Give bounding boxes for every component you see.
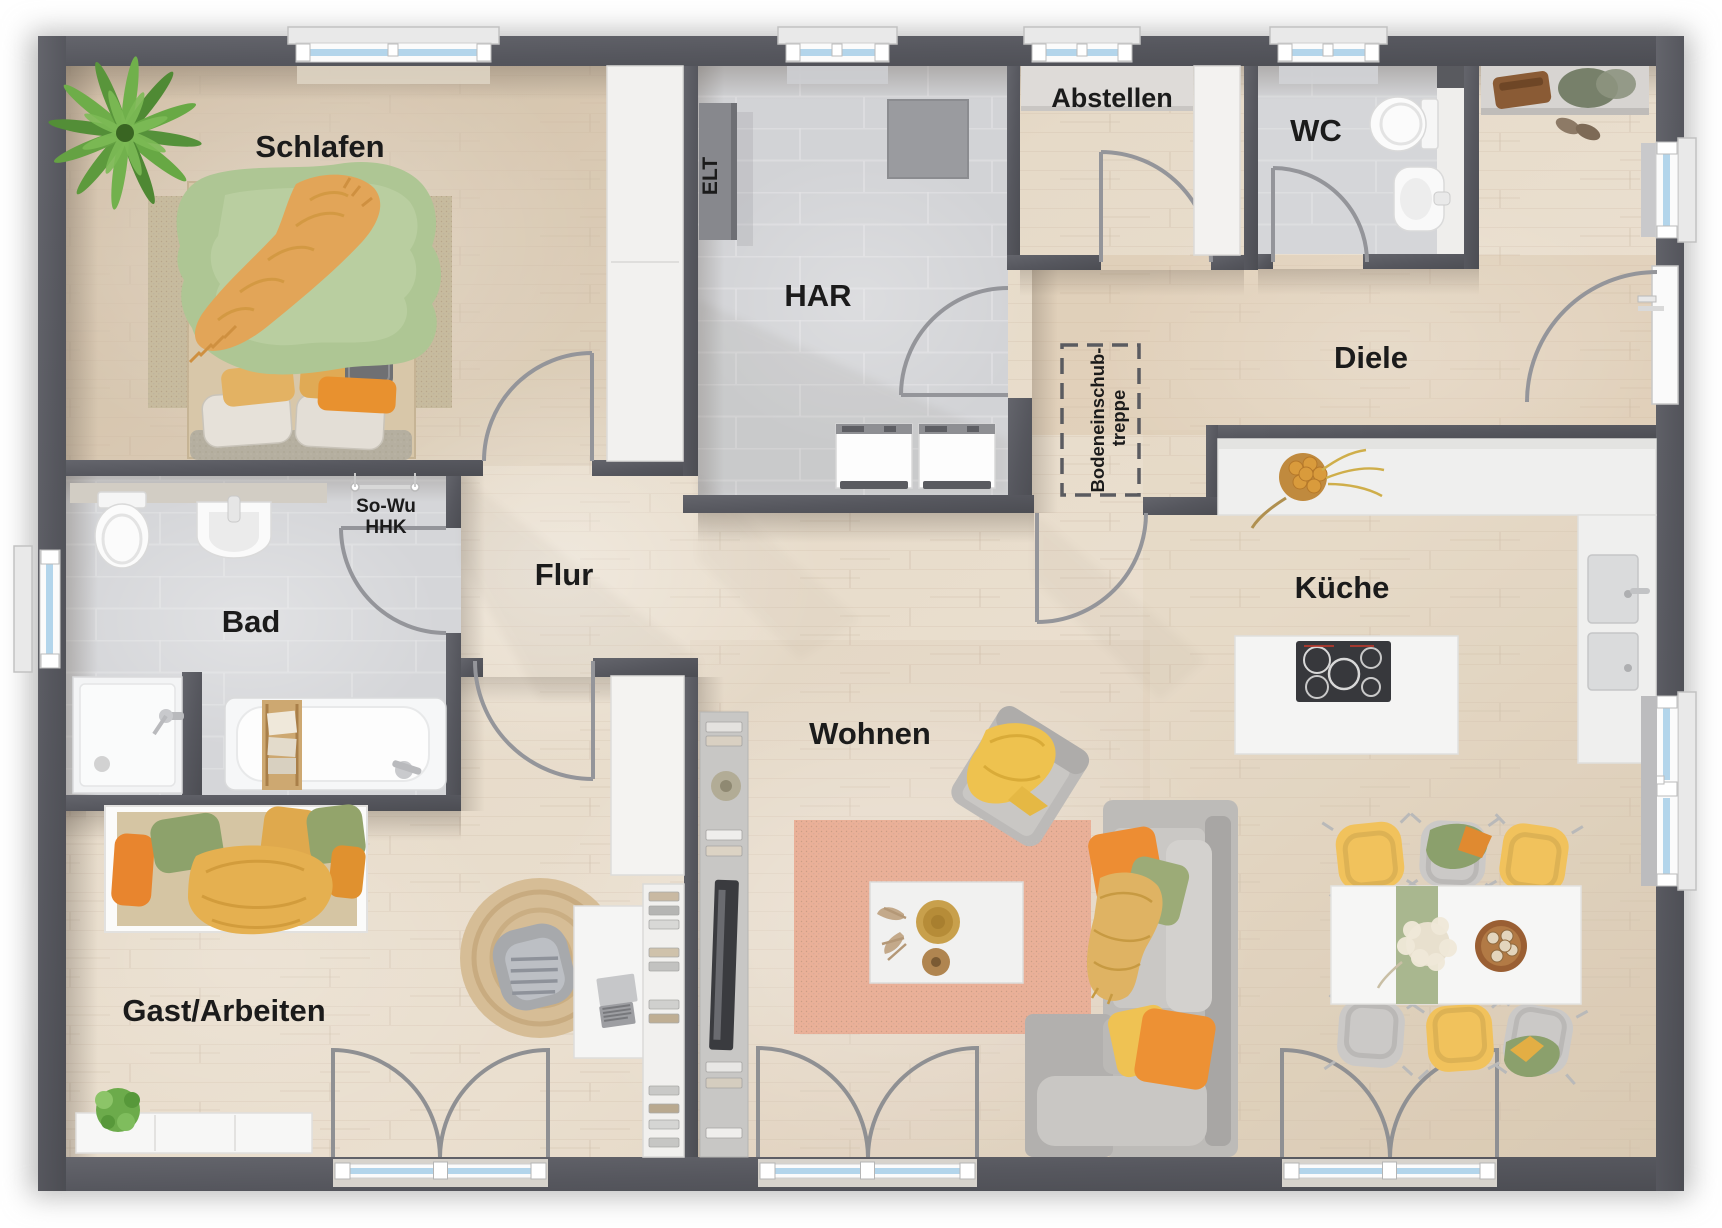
svg-text:Diele: Diele [1334,340,1408,375]
svg-text:Wohnen: Wohnen [809,716,931,751]
svg-text:HHK: HHK [365,517,406,538]
svg-text:So-Wu: So-Wu [356,496,416,517]
svg-text:HAR: HAR [784,278,851,313]
svg-text:WC: WC [1290,113,1342,148]
svg-text:Abstellen: Abstellen [1051,83,1173,113]
svg-text:Schlafen: Schlafen [255,129,384,164]
svg-text:Bodeneinschub-: Bodeneinschub- [1087,348,1108,493]
svg-text:treppe: treppe [1108,390,1129,447]
svg-text:Flur: Flur [535,557,594,592]
svg-text:ELT: ELT [699,157,722,195]
svg-text:Bad: Bad [222,604,281,639]
svg-text:Küche: Küche [1295,570,1390,605]
svg-text:Gast/Arbeiten: Gast/Arbeiten [122,993,325,1028]
